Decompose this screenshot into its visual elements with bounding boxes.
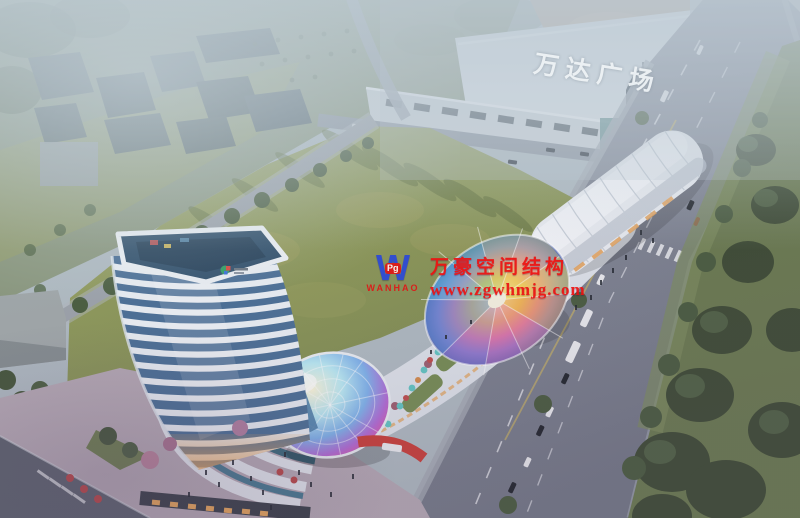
logo-name: WANHAO [364,283,422,293]
architectural-rendering: 万达广场 W Pg WANHAO 万豪空间结构 www.zgwhmjg.com [0,0,800,518]
wanhao-logo-icon: W Pg WANHAO [364,252,422,293]
watermark-text: 万豪空间结构 www.zgwhmjg.com [430,252,586,300]
logo-badge: Pg [385,263,401,274]
dusk-bottomleft [0,300,420,518]
watermark-website: www.zgwhmjg.com [430,280,586,300]
watermark-company: 万豪空间结构 [430,252,586,279]
watermark: W Pg WANHAO 万豪空间结构 www.zgwhmjg.com [364,252,586,300]
